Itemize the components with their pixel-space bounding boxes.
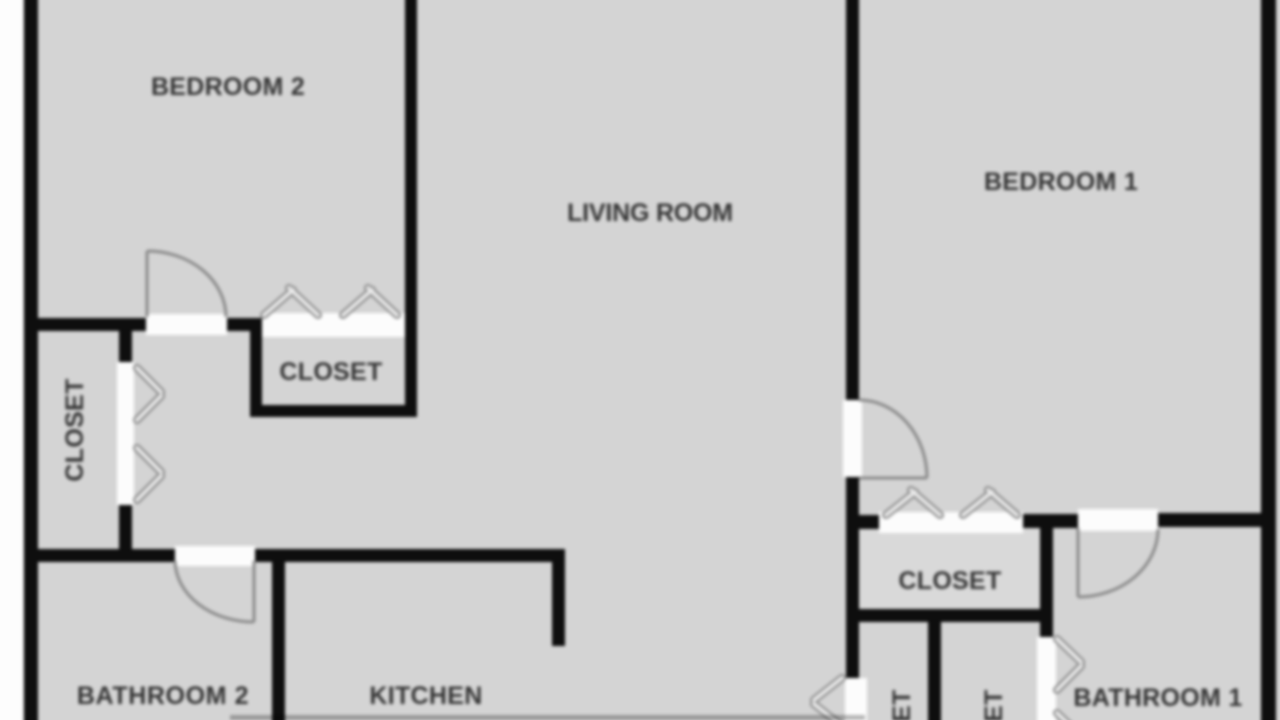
svg-text:BEDROOM 2: BEDROOM 2: [151, 73, 305, 101]
svg-text:BATHROOM 2: BATHROOM 2: [77, 682, 249, 710]
svg-text:CLOSET: CLOSET: [980, 689, 1008, 720]
svg-text:CLOSET: CLOSET: [898, 567, 1001, 595]
svg-text:KITCHEN: KITCHEN: [369, 682, 482, 710]
svg-text:CLOSET: CLOSET: [888, 689, 916, 720]
svg-text:BEDROOM 1: BEDROOM 1: [984, 168, 1138, 196]
svg-text:CLOSET: CLOSET: [279, 358, 382, 386]
svg-text:CLOSET: CLOSET: [61, 378, 89, 481]
svg-text:BATHROOM 1: BATHROOM 1: [1073, 684, 1242, 712]
svg-text:LIVING ROOM: LIVING ROOM: [567, 199, 733, 227]
